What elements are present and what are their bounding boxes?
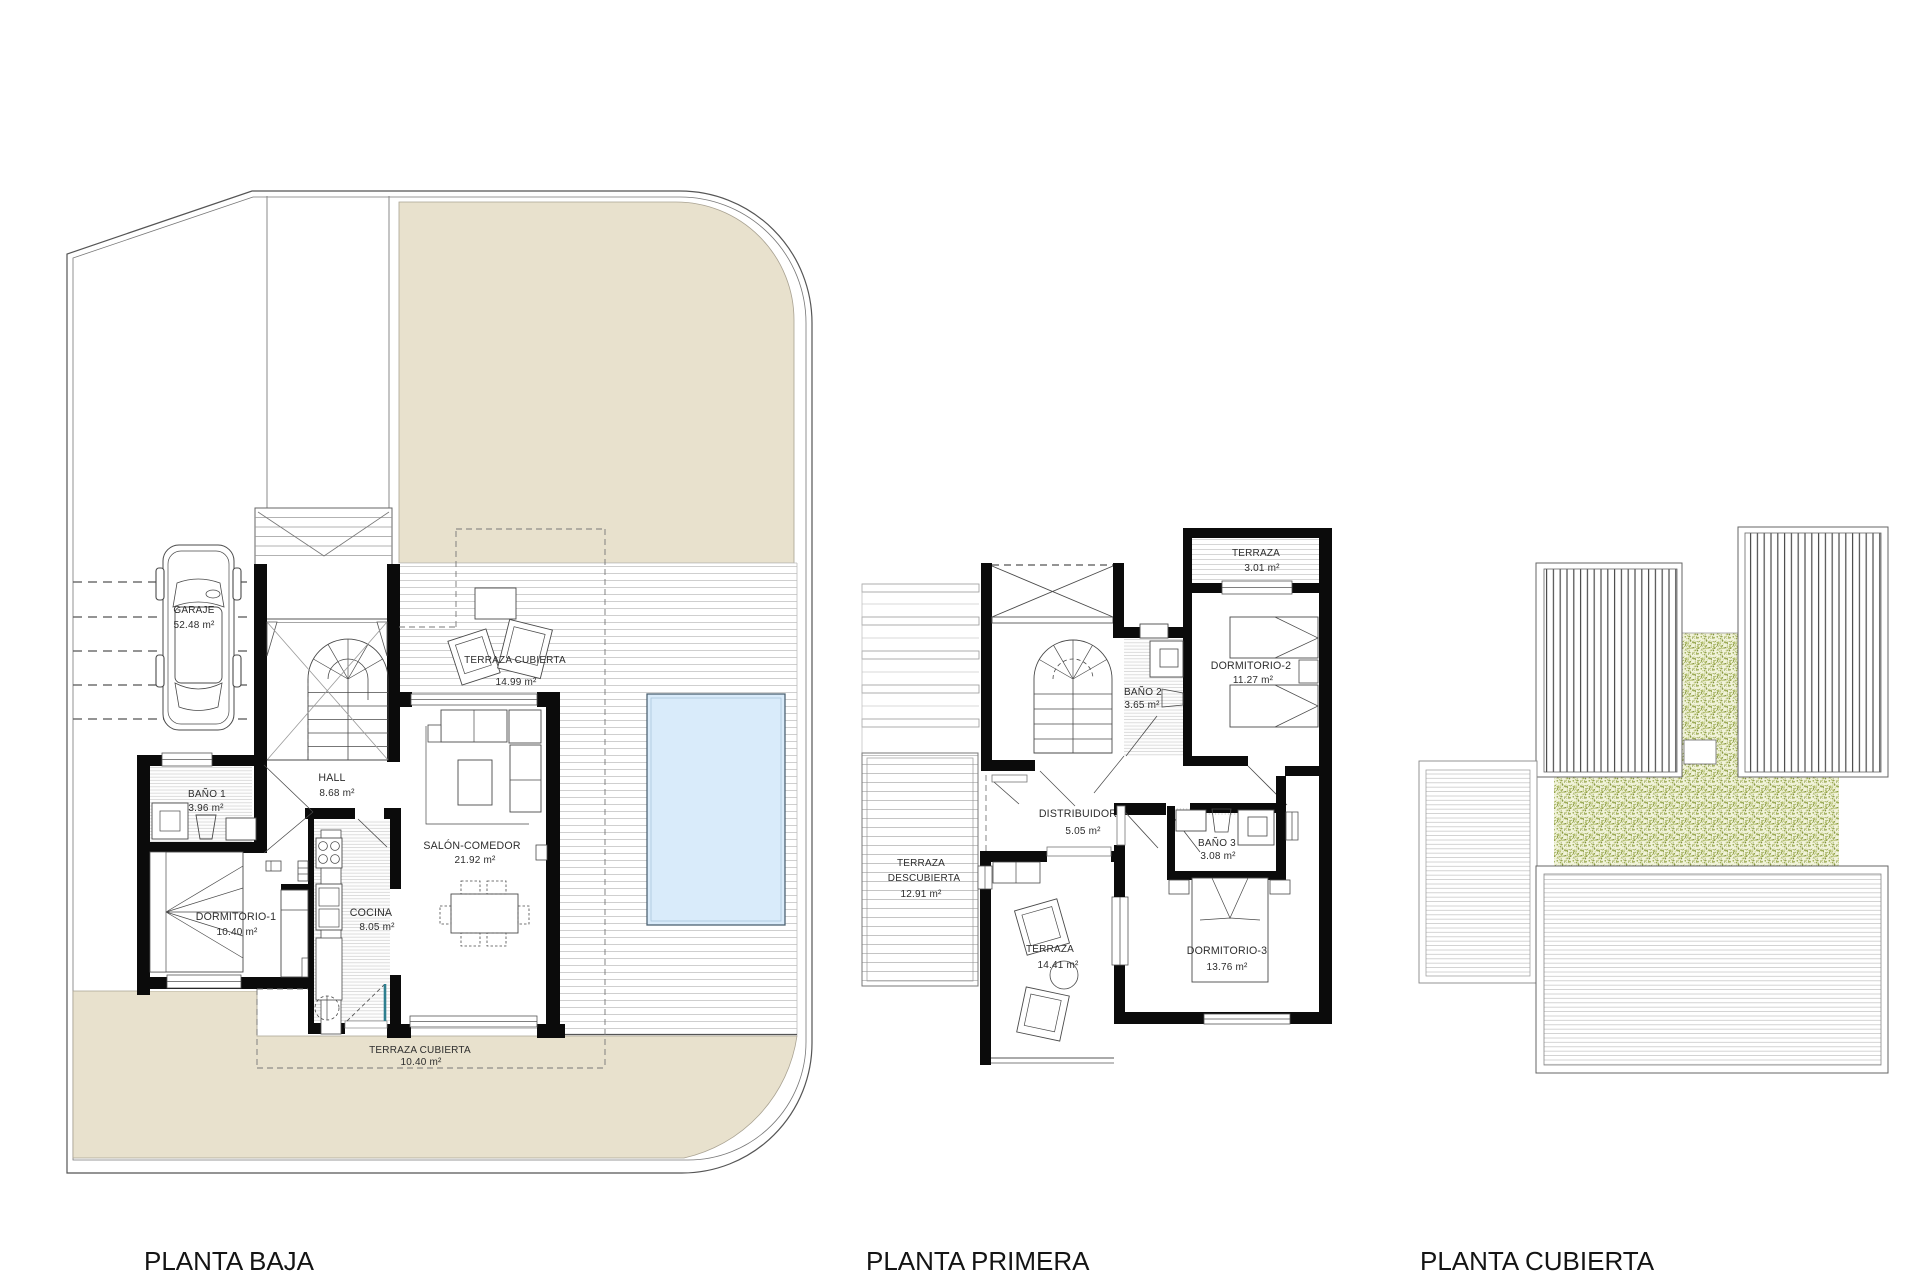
svg-text:14.41 m²: 14.41 m² bbox=[1037, 960, 1079, 971]
svg-text:3.96 m²: 3.96 m² bbox=[188, 803, 224, 814]
svg-text:11.27 m²: 11.27 m² bbox=[1233, 675, 1274, 686]
svg-text:TERRAZA CUBIERTA: TERRAZA CUBIERTA bbox=[464, 655, 566, 666]
svg-text:TERRAZA: TERRAZA bbox=[1026, 944, 1074, 955]
svg-text:BAÑO 1: BAÑO 1 bbox=[188, 787, 226, 800]
svg-text:21.92 m²: 21.92 m² bbox=[454, 855, 496, 866]
svg-text:DISTRIBUIDOR: DISTRIBUIDOR bbox=[1039, 808, 1117, 820]
svg-text:DESCUBIERTA: DESCUBIERTA bbox=[888, 873, 961, 884]
svg-text:TERRAZA CUBIERTA: TERRAZA CUBIERTA bbox=[369, 1045, 471, 1056]
svg-text:52.48 m²: 52.48 m² bbox=[173, 620, 215, 631]
svg-text:PLANTA PRIMERA: PLANTA PRIMERA bbox=[866, 1246, 1090, 1276]
svg-text:10.40 m²: 10.40 m² bbox=[400, 1057, 442, 1068]
svg-text:TERRAZA: TERRAZA bbox=[1232, 548, 1280, 559]
svg-text:PLANTA CUBIERTA: PLANTA CUBIERTA bbox=[1420, 1246, 1655, 1276]
svg-text:8.05 m²: 8.05 m² bbox=[359, 922, 395, 933]
svg-text:COCINA: COCINA bbox=[350, 907, 393, 919]
svg-text:BAÑO 2: BAÑO 2 bbox=[1124, 685, 1162, 698]
svg-text:10.40 m²: 10.40 m² bbox=[216, 927, 258, 938]
svg-text:DORMITORIO-2: DORMITORIO-2 bbox=[1211, 660, 1291, 672]
svg-text:PLANTA BAJA: PLANTA BAJA bbox=[144, 1246, 315, 1276]
svg-text:HALL: HALL bbox=[318, 772, 345, 784]
svg-text:3.08 m²: 3.08 m² bbox=[1200, 851, 1236, 862]
svg-text:5.05 m²: 5.05 m² bbox=[1065, 826, 1101, 837]
svg-text:8.68 m²: 8.68 m² bbox=[319, 788, 355, 799]
svg-text:GARAJE: GARAJE bbox=[173, 605, 214, 616]
svg-text:3.01 m²: 3.01 m² bbox=[1244, 563, 1280, 574]
svg-text:3.65 m²: 3.65 m² bbox=[1124, 700, 1160, 711]
svg-text:DORMITORIO-1: DORMITORIO-1 bbox=[196, 911, 276, 923]
svg-text:SALÓN-COMEDOR: SALÓN-COMEDOR bbox=[423, 839, 521, 852]
svg-text:DORMITORIO-3: DORMITORIO-3 bbox=[1187, 945, 1267, 957]
svg-text:12.91 m²: 12.91 m² bbox=[900, 889, 942, 900]
svg-text:14.99 m²: 14.99 m² bbox=[495, 677, 537, 688]
svg-text:BAÑO 3: BAÑO 3 bbox=[1198, 836, 1236, 849]
svg-text:TERRAZA: TERRAZA bbox=[897, 858, 945, 869]
svg-text:13.76 m²: 13.76 m² bbox=[1206, 962, 1248, 973]
